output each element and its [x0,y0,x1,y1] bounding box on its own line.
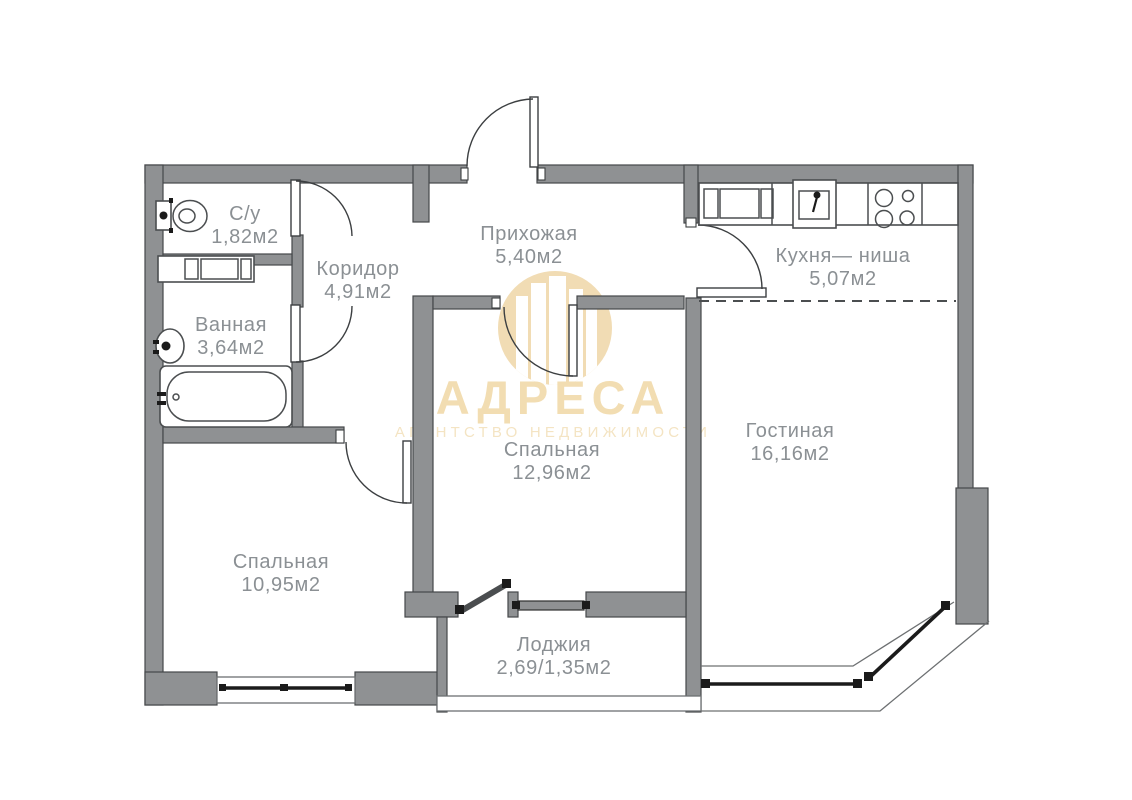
room-name: Ванная [195,314,267,337]
wall-wc-right-lower [292,361,303,429]
room-label-corridor: Коридор 4,91м2 [316,258,399,304]
toilet-icon [156,198,207,233]
bathroom-door [291,305,352,362]
washing-machine-icon [158,256,254,282]
room-name: Спальная [233,551,329,574]
watermark-title: АДРЕСА [436,371,671,424]
room-label-kitchen-niche: Кухня— ниша 5,07м2 [775,245,910,291]
room-label-bedroom-left: Спальная 10,95м2 [233,551,329,597]
living-room-bay-window [701,601,950,688]
wall-right [958,165,973,490]
room-name: Коридор [316,258,399,281]
wall-left [145,165,163,705]
room-area: 1,82м2 [211,226,278,249]
wall-loggia-band-left [405,592,458,617]
wall-bedroom2-top-right [577,296,684,309]
wall-top-right [537,165,973,183]
room-name: Лоджия [497,634,612,657]
room-label-loggia: Лоджия 2,69/1,35м2 [497,634,612,680]
kitchen-area-door [686,218,766,297]
bathtub-icon [157,366,292,427]
wall-kitchen-stub [684,165,698,223]
room-area: 3,64м2 [195,337,267,360]
wall-wc-right-upper [292,235,303,307]
wall-bedroom2-top-left [433,296,500,309]
room-area: 5,07м2 [775,268,910,291]
wall-bedroom2-right [686,298,701,712]
wall-loggia-band-right [586,592,686,617]
wc-door [291,180,352,236]
wall-bottom-mid [355,672,443,705]
balcony-door [455,579,511,614]
room-name: Гостиная [746,420,835,443]
room-label-wc: С/у 1,82м2 [211,203,278,249]
loggia-rail [437,696,701,711]
kitchen-sink-icon [793,180,836,228]
room-area: 16,16м2 [746,443,835,466]
room-name: Спальная [504,439,600,462]
entrance-door [461,97,545,180]
room-name: Прихожая [480,223,577,246]
floor-plan: АДРЕСА АГЕНТСТВО НЕДВИЖИМОСТИ [0,0,1132,800]
room-label-living-room: Гостиная 16,16м2 [746,420,835,466]
room-area: 4,91м2 [316,281,399,304]
room-area: 12,96м2 [504,462,600,485]
room-label-bedroom-middle: Спальная 12,96м2 [504,439,600,485]
wall-bottom-left [145,672,217,705]
wall-bath-bottom [163,427,344,443]
loggia-window [512,601,590,610]
floorplan-drawing: АДРЕСА АГЕНТСТВО НЕДВИЖИМОСТИ [0,0,1132,800]
wall-entry-stub [413,165,429,222]
bedroom-left-window [217,677,355,703]
room-area: 2,69/1,35м2 [497,657,612,680]
room-label-hallway: Прихожая 5,40м2 [480,223,577,269]
room-name: С/у [211,203,278,226]
wall-right-pier [956,488,988,624]
room-label-bathroom: Ванная 3,64м2 [195,314,267,360]
room-area: 5,40м2 [480,246,577,269]
room-area: 10,95м2 [233,574,329,597]
room-name: Кухня— ниша [775,245,910,268]
wall-bedrooms-divider [413,296,433,594]
